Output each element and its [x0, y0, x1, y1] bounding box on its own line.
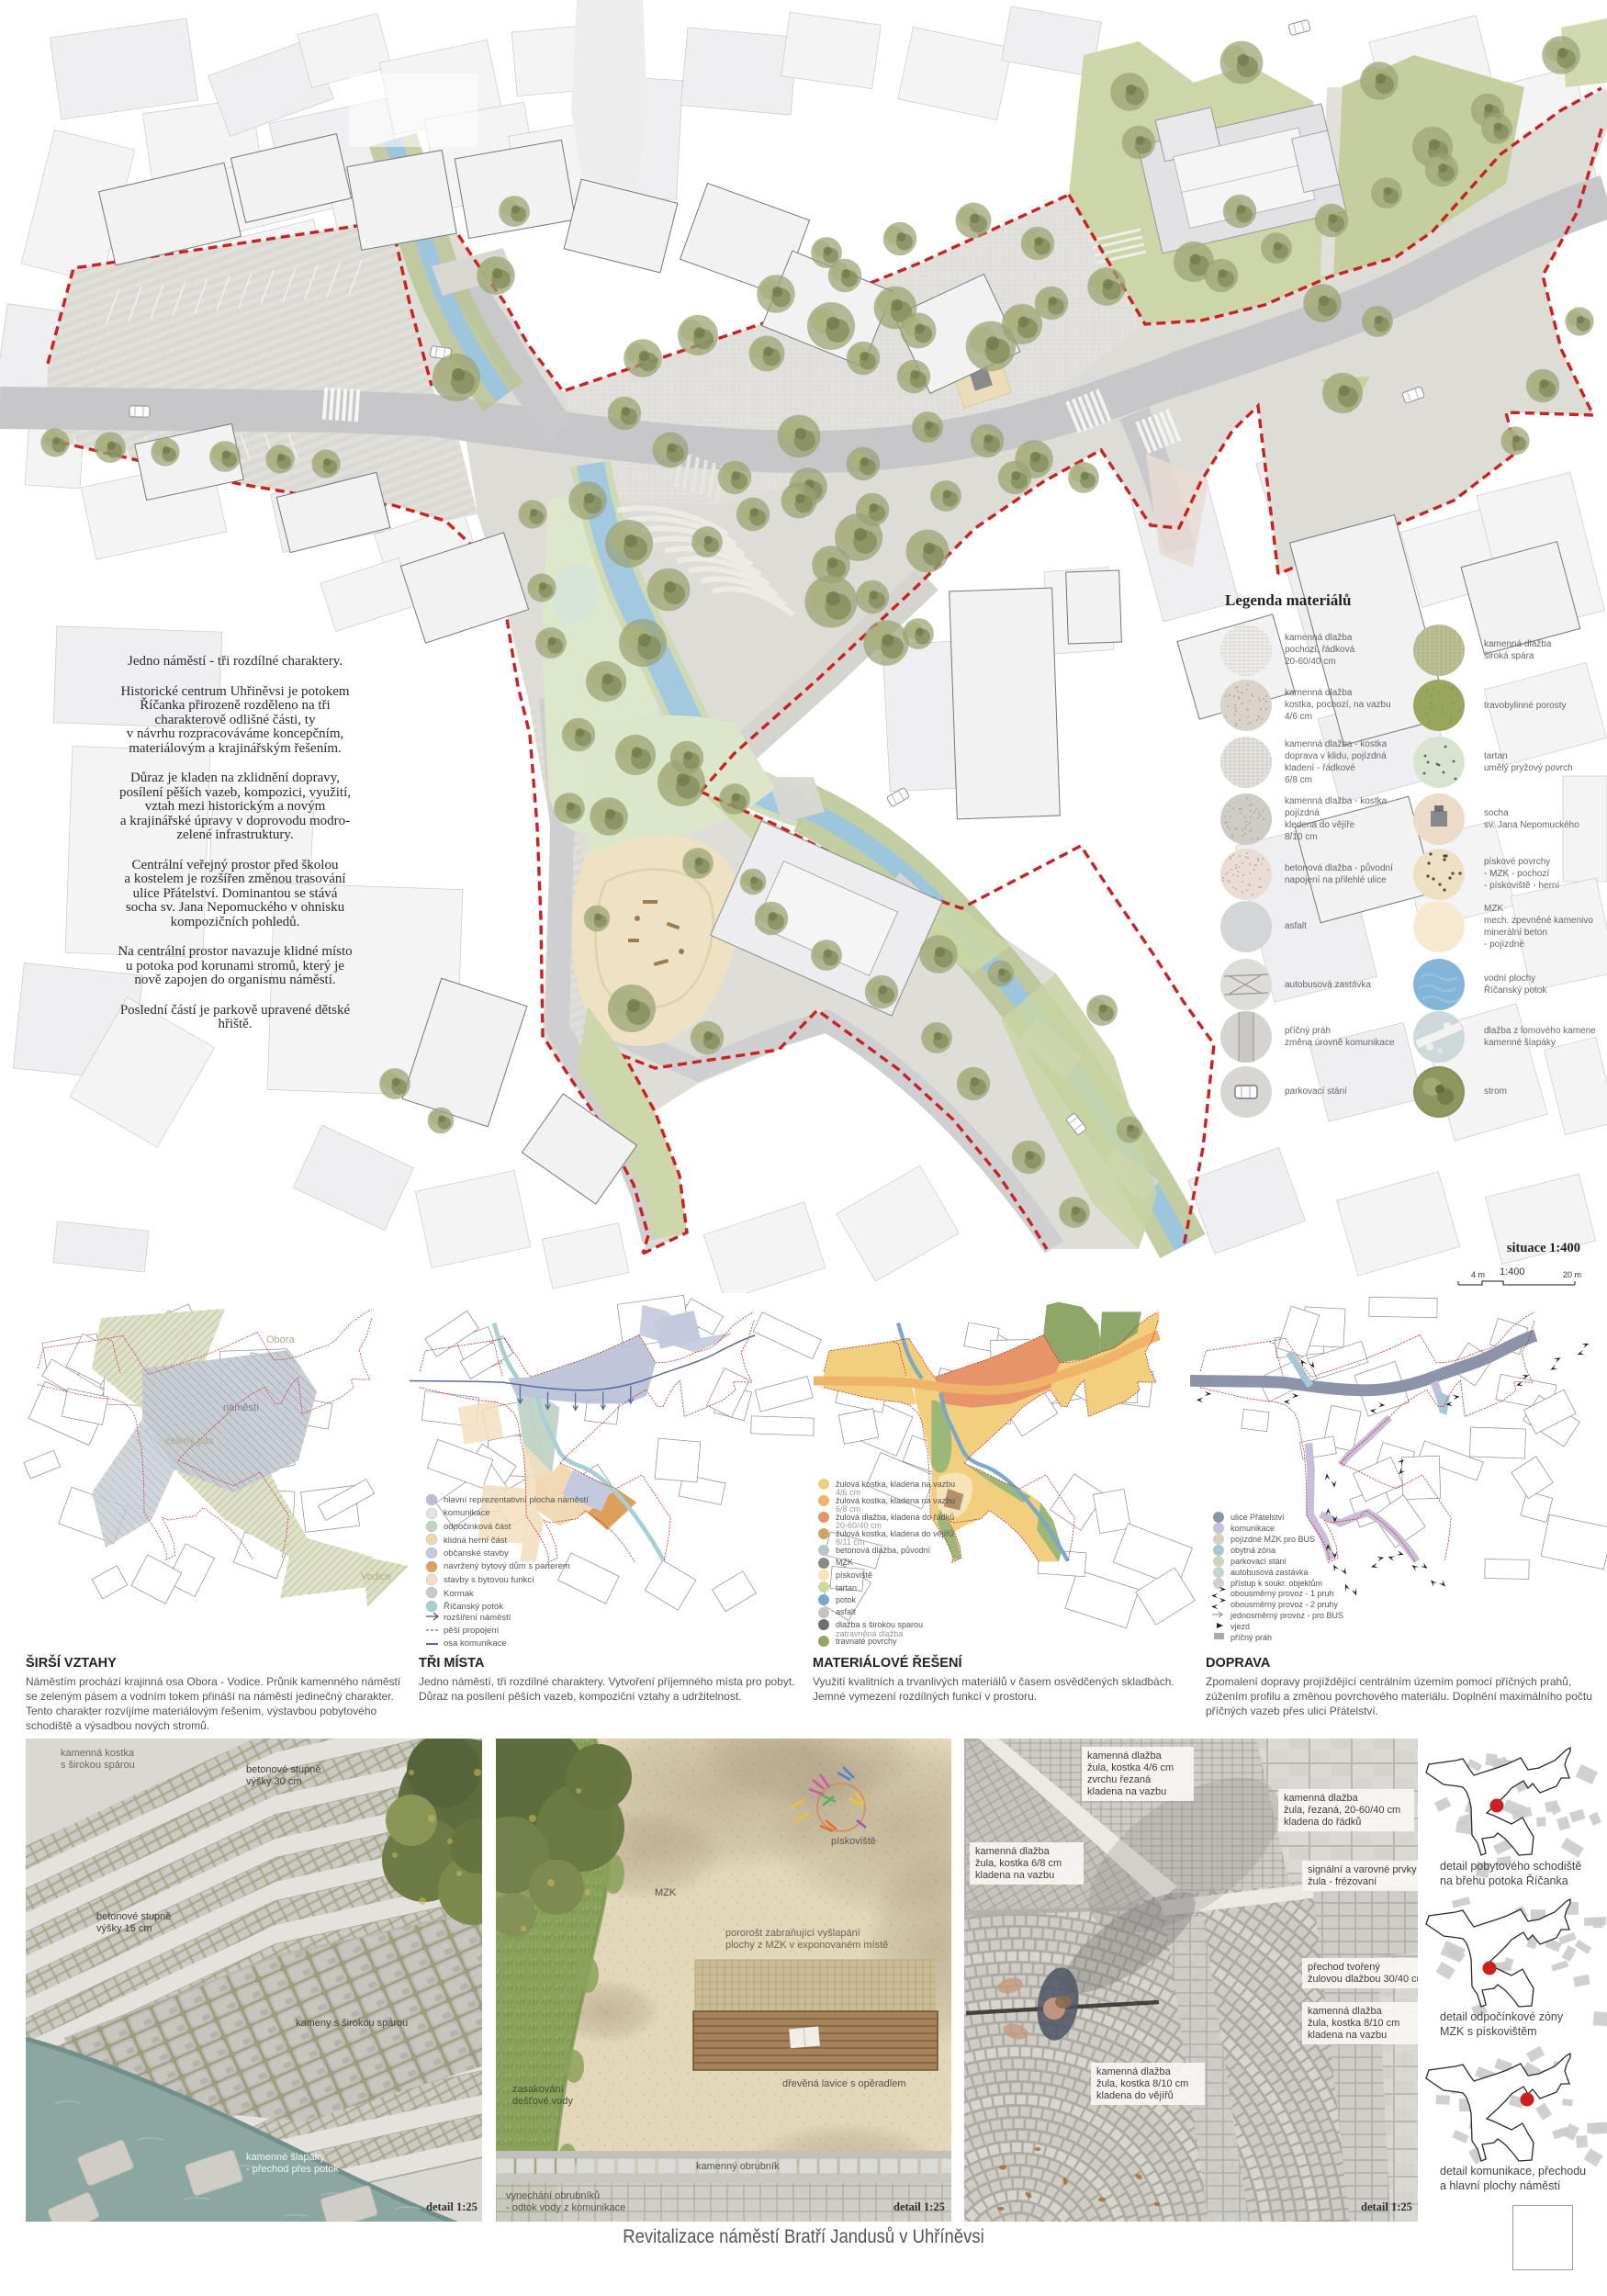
svg-text:kamenná dlažba: kamenná dlažba: [1087, 1750, 1163, 1761]
svg-text:kladena do řádků: kladena do řádků: [1284, 1817, 1361, 1828]
svg-text:Kormak: Kormak: [444, 1589, 474, 1599]
svg-text:potok: potok: [836, 1595, 857, 1604]
svg-text:hlavní reprezentativní plocha: hlavní reprezentativní plocha náměstí: [444, 1495, 589, 1505]
svg-text:detail 1:25: detail 1:25: [426, 2200, 478, 2213]
svg-text:občanské stavby: občanské stavby: [444, 1548, 509, 1559]
svg-text:Vodice: Vodice: [361, 1571, 391, 1582]
svg-text:4 m: 4 m: [1471, 1270, 1485, 1279]
svg-text:kamenná dlažba: kamenná dlažba: [1284, 1793, 1359, 1804]
svg-text:s širokou spárou: s širokou spárou: [61, 1760, 135, 1771]
svg-text:na břehu potoka Říčanka: na břehu potoka Říčanka: [1440, 1874, 1568, 1887]
svg-text:vjezd: vjezd: [1231, 1622, 1250, 1631]
svg-text:žula - frézovaní: žula - frézovaní: [1308, 1876, 1377, 1887]
svg-text:pískoviště: pískoviště: [831, 1836, 876, 1847]
svg-text:kladena na vazbu: kladena na vazbu: [975, 1870, 1054, 1881]
svg-text:dřevěná lavice s opěradlem: dřevěná lavice s opěradlem: [782, 2078, 906, 2089]
svg-text:kamenná dlažba: kamenná dlažba: [975, 1846, 1051, 1857]
svg-text:betonové stupně: betonové stupně: [246, 1764, 320, 1775]
svg-text:osa komunikace: osa komunikace: [444, 1638, 507, 1649]
svg-text:detail pobytového schodiště: detail pobytového schodiště: [1440, 1860, 1581, 1873]
svg-text:dešťové vody: dešťové vody: [512, 2096, 573, 2107]
svg-text:kladena na vazbu: kladena na vazbu: [1087, 1786, 1166, 1797]
svg-text:obousměrný provoz - 1 pruh: obousměrný provoz - 1 pruh: [1231, 1589, 1334, 1598]
svg-text:zasakování: zasakování: [512, 2084, 564, 2095]
svg-text:parkovací stání: parkovací stání: [1231, 1557, 1287, 1566]
svg-text:MZK s pískovištěm: MZK s pískovištěm: [1440, 2025, 1537, 2038]
svg-text:MZK: MZK: [836, 1558, 853, 1567]
svg-text:kameny s širokou spárou: kameny s širokou spárou: [296, 2018, 408, 2029]
svg-text:detail 1:25: detail 1:25: [893, 2200, 945, 2213]
svg-text:komunikace: komunikace: [1231, 1524, 1275, 1533]
svg-text:kamenná dlažba: kamenná dlažba: [1308, 2006, 1383, 2017]
svg-text:kladena do vějířů: kladena do vějířů: [1096, 2090, 1174, 2101]
svg-text:a hlavní plochy náměstí: a hlavní plochy náměstí: [1440, 2179, 1561, 2192]
svg-text:rozšíření náměstí: rozšíření náměstí: [444, 1613, 511, 1623]
svg-text:obytná zóna: obytná zóna: [1231, 1546, 1275, 1555]
svg-text:dlažba s širokou sparou: dlažba s širokou sparou: [836, 1620, 923, 1629]
svg-text:přístup k soukr. objektům: přístup k soukr. objektům: [1231, 1579, 1322, 1588]
svg-text:asfalt: asfalt: [836, 1607, 856, 1616]
svg-text:žula, kostka 6/8 cm: žula, kostka 6/8 cm: [975, 1858, 1062, 1869]
svg-text:výšky 30 cm: výšky 30 cm: [246, 1776, 302, 1787]
svg-text:- přechod přes potok: - přechod přes potok: [246, 2164, 339, 2175]
svg-text:žula, kostka 4/6 cm: žula, kostka 4/6 cm: [1087, 1762, 1174, 1773]
svg-text:klidná herní část: klidná herní část: [444, 1536, 508, 1546]
svg-text:komunikace: komunikace: [444, 1508, 490, 1518]
svg-text:ulice Přátelství: ulice Přátelství: [1231, 1513, 1285, 1522]
svg-text:náměstí: náměstí: [223, 1402, 259, 1413]
svg-text:detail 1:25: detail 1:25: [1361, 2200, 1412, 2213]
svg-text:- odtok vody z komunikace: - odtok vody z komunikace: [506, 2202, 625, 2213]
svg-text:odpočinková část: odpočinková část: [444, 1522, 511, 1532]
svg-text:žula, kostka 8/10 cm: žula, kostka 8/10 cm: [1096, 2078, 1188, 2089]
svg-text:kamenná kostka: kamenná kostka: [61, 1748, 135, 1759]
svg-text:příčný práh: příčný práh: [1231, 1633, 1272, 1642]
svg-text:navržený bytový dům s parterem: navržený bytový dům s parterem: [444, 1561, 570, 1571]
svg-text:pěší propojení: pěší propojení: [444, 1626, 500, 1636]
svg-text:žula, řezaná, 20-60/40 cm: žula, řezaná, 20-60/40 cm: [1284, 1805, 1400, 1816]
svg-text:Říčanský potok: Říčanský potok: [444, 1602, 503, 1612]
svg-text:žulovou dlažbou 30/40 cm: žulovou dlažbou 30/40 cm: [1308, 1974, 1425, 1985]
svg-text:travnaté povrchy: travnaté povrchy: [836, 1637, 897, 1646]
svg-text:20 m: 20 m: [1563, 1270, 1581, 1279]
svg-text:obousměrný provoz - 2 pruhy: obousměrný provoz - 2 pruhy: [1231, 1600, 1339, 1609]
svg-text:pororošt zabraňující vyšlapání: pororošt zabraňující vyšlapání: [725, 1928, 860, 1939]
svg-text:plochy z MZK v exponovaném mí: plochy z MZK v exponovaném místě: [725, 1940, 888, 1951]
svg-text:vynechání obrubníků: vynechání obrubníků: [506, 2190, 600, 2201]
svg-text:pojízdné MZK pro BUS: pojízdné MZK pro BUS: [1231, 1535, 1315, 1544]
svg-text:přechod tvořený: přechod tvořený: [1308, 1962, 1380, 1973]
svg-text:autobusová zastávka: autobusová zastávka: [1231, 1568, 1309, 1577]
svg-text:kamenné šlapáky: kamenné šlapáky: [246, 2152, 325, 2163]
svg-text:kamenný obrubník: kamenný obrubník: [696, 2161, 780, 2172]
svg-text:betonová dlažba, původní: betonová dlažba, původní: [836, 1546, 931, 1555]
svg-text:kamenná dlažba: kamenná dlažba: [1096, 2066, 1172, 2077]
svg-text:tartan: tartan: [836, 1583, 857, 1593]
svg-text:detail odpočínkové zóny: detail odpočínkové zóny: [1440, 2010, 1564, 2023]
svg-text:stavby s bytovou funkcí: stavby s bytovou funkcí: [444, 1575, 534, 1585]
svg-text:pískoviště: pískoviště: [836, 1570, 872, 1580]
svg-text:MZK: MZK: [655, 1887, 677, 1898]
svg-text:výšky 15 cm: výšky 15 cm: [96, 1923, 152, 1934]
svg-text:zelený pas: zelený pas: [165, 1435, 214, 1446]
svg-text:žula, kostka 8/10 cm: žula, kostka 8/10 cm: [1308, 2018, 1399, 2029]
svg-text:zvrchu řezaná: zvrchu řezaná: [1087, 1774, 1152, 1785]
svg-text:Obora: Obora: [266, 1334, 295, 1345]
svg-text:1:400: 1:400: [1500, 1266, 1525, 1277]
svg-text:betonové stupně: betonové stupně: [96, 1911, 171, 1922]
svg-text:jednosměrný provoz - pro BUS: jednosměrný provoz - pro BUS: [1230, 1611, 1343, 1620]
svg-text:signální a varovné prvky: signální a varovné prvky: [1308, 1864, 1417, 1875]
svg-text:detail komunikace, přechodu: detail komunikace, přechodu: [1440, 2165, 1586, 2178]
svg-text:kladena na vazbu: kladena na vazbu: [1308, 2030, 1387, 2041]
